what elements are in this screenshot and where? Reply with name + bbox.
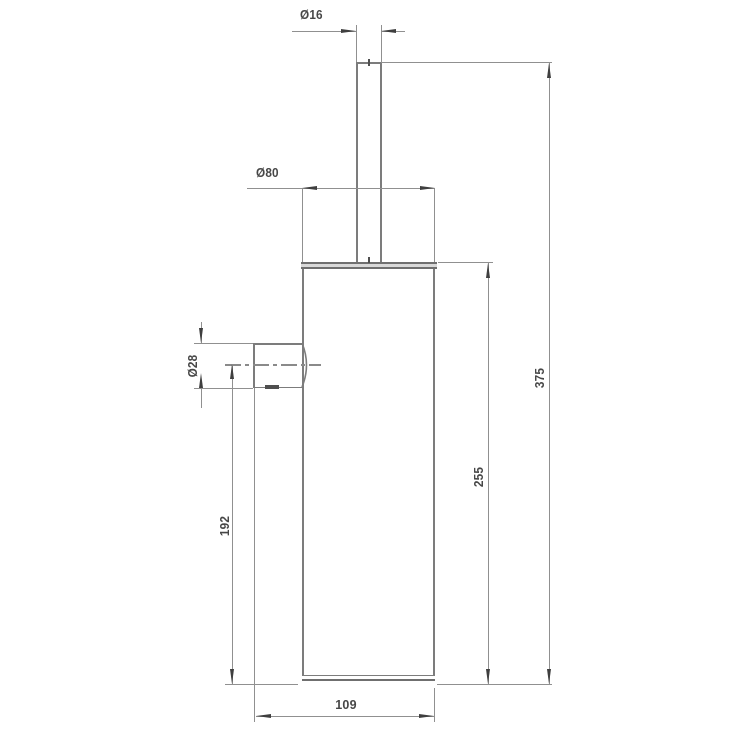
dim109-ext-left — [254, 388, 255, 722]
dim255-arrow-top — [486, 263, 490, 278]
dim-label-depth: 109 — [316, 698, 376, 712]
dim109-arrow-right — [419, 714, 434, 718]
handle-rod-left-wall — [356, 62, 358, 263]
dim16-arrow-right — [381, 29, 396, 33]
dim192-arrow-bottom — [230, 669, 234, 684]
dim-label-body-height: 255 — [472, 467, 486, 487]
dim16-ext-left — [356, 25, 357, 62]
bracket-weld-mark — [265, 385, 279, 389]
dim28-tail-bottom — [201, 388, 202, 408]
dim192-arrow-top — [230, 364, 234, 379]
dim80-ext-left — [302, 188, 303, 262]
dim80-ext-right — [434, 188, 435, 262]
bracket-top-edge — [253, 343, 303, 345]
lid-centerline-tick — [368, 257, 370, 263]
bracket-centerline — [225, 364, 321, 366]
dim-label-body-diameter: Ø80 — [256, 166, 279, 180]
body-bottom-plate — [302, 675, 435, 681]
dim192-line — [232, 364, 233, 684]
dim80-arrow-left — [302, 186, 317, 190]
dim28-arrow-top — [199, 328, 203, 343]
dim-label-mount-center-height: 192 — [218, 516, 232, 536]
dim375-ref-top — [381, 62, 552, 63]
dim109-ext-right — [434, 688, 435, 722]
technical-drawing-canvas: Ø16 Ø80 Ø28 192 255 375 109 — [0, 0, 740, 740]
dim109-line — [256, 716, 434, 717]
dim-label-total-height: 375 — [533, 368, 547, 388]
lid-plate — [301, 262, 437, 269]
dim375-arrow-bottom — [547, 669, 551, 684]
bracket-arc-edge — [298, 341, 314, 391]
dim255-line — [488, 263, 489, 684]
dim375-arrow-top — [547, 63, 551, 78]
dim109-arrow-left — [256, 714, 271, 718]
handle-rod-right-wall — [380, 62, 382, 263]
bracket-left-edge — [253, 343, 255, 388]
body-left-wall — [302, 269, 304, 679]
dim16-arrow-left — [341, 29, 356, 33]
dim375-line — [549, 63, 550, 684]
rod-centerline-tick — [368, 59, 370, 66]
dim-label-mount-diameter: Ø28 — [186, 355, 200, 378]
dim255-arrow-bottom — [486, 669, 490, 684]
dim28-ext-top — [194, 343, 253, 344]
bottom-ref-right — [437, 684, 552, 685]
dim80-arrow-right — [420, 186, 435, 190]
dim-label-handle-diameter: Ø16 — [300, 8, 323, 22]
dim80-line — [247, 188, 435, 189]
dim255-ref-top — [438, 262, 493, 263]
body-right-wall — [433, 269, 435, 679]
dim28-ext-bottom — [194, 388, 253, 389]
bottom-ref-left — [225, 684, 298, 685]
